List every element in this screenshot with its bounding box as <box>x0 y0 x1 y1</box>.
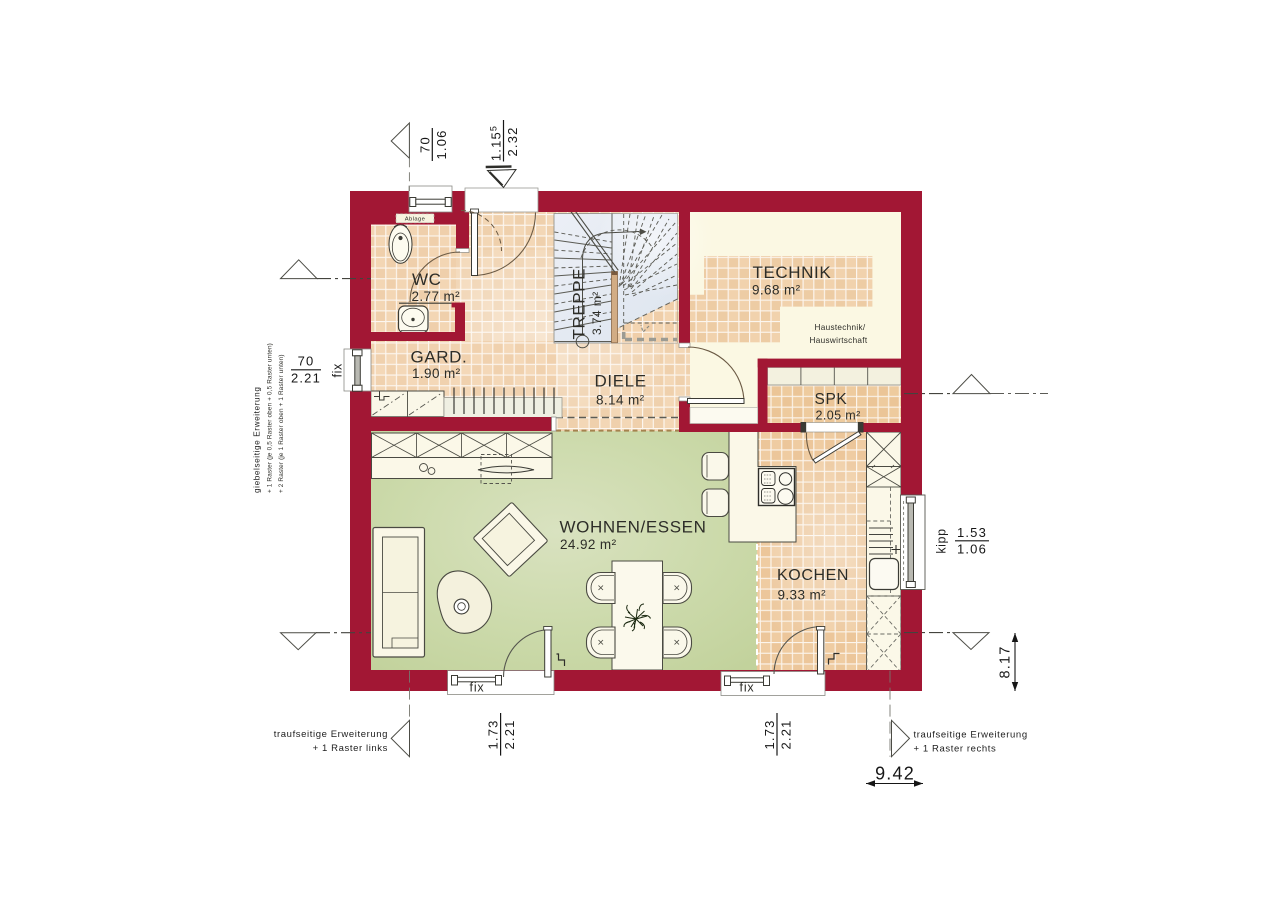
svg-text:giebelseitige Erweiterung: giebelseitige Erweiterung <box>253 387 262 493</box>
svg-text:+ 1 Raster (je 0,5 Raster oben: + 1 Raster (je 0,5 Raster oben + 0,5 Ras… <box>267 343 274 493</box>
svg-text:TREPPE: TREPPE <box>570 268 589 340</box>
svg-text:kipp: kipp <box>935 528 949 553</box>
svg-text:Hauswirtschaft: Hauswirtschaft <box>810 336 868 345</box>
svg-text:9.68 m²: 9.68 m² <box>752 283 801 298</box>
svg-text:2.05 m²: 2.05 m² <box>816 409 861 423</box>
svg-text:9.33 m²: 9.33 m² <box>778 588 827 603</box>
svg-text:2.77 m²: 2.77 m² <box>412 289 461 304</box>
svg-text:1.73: 1.73 <box>486 719 501 749</box>
svg-text:+ 1 Raster links: + 1 Raster links <box>313 743 388 754</box>
svg-text:fix: fix <box>470 681 485 695</box>
svg-text:traufseitige Erweiterung: traufseitige Erweiterung <box>274 729 388 740</box>
svg-text:+ 2 Raster (je 1 Raster oben +: + 2 Raster (je 1 Raster oben + 1 Raster … <box>278 354 285 493</box>
svg-text:GARD.: GARD. <box>411 348 468 367</box>
svg-text:2.21: 2.21 <box>502 719 517 749</box>
svg-text:KOCHEN: KOCHEN <box>777 567 849 584</box>
svg-text:Ablage: Ablage <box>405 217 425 223</box>
svg-text:WOHNEN/ESSEN: WOHNEN/ESSEN <box>560 518 707 537</box>
svg-text:24.92 m²: 24.92 m² <box>560 537 617 552</box>
svg-text:+ 1 Raster rechts: + 1 Raster rechts <box>914 744 997 755</box>
svg-text:8.14 m²: 8.14 m² <box>596 393 645 408</box>
svg-text:70: 70 <box>298 354 315 369</box>
svg-text:traufseitige Erweiterung: traufseitige Erweiterung <box>914 730 1028 741</box>
svg-text:2.32: 2.32 <box>505 126 520 156</box>
svg-text:1.53: 1.53 <box>957 525 987 540</box>
svg-text:3.74 m²: 3.74 m² <box>590 292 604 335</box>
svg-text:TECHNIK: TECHNIK <box>753 263 832 282</box>
svg-text:SPK: SPK <box>815 391 848 408</box>
svg-text:WC: WC <box>412 270 442 289</box>
svg-text:1.90 m²: 1.90 m² <box>412 366 461 381</box>
svg-text:70: 70 <box>417 136 432 153</box>
svg-text:1.06: 1.06 <box>957 542 987 557</box>
svg-text:8.17: 8.17 <box>998 645 1014 678</box>
svg-text:fix: fix <box>331 363 345 377</box>
svg-text:1.06: 1.06 <box>434 129 449 159</box>
svg-text:1.73: 1.73 <box>762 719 777 749</box>
svg-text:2.21: 2.21 <box>779 719 794 749</box>
svg-text:2.21: 2.21 <box>291 371 321 386</box>
svg-text:9.42: 9.42 <box>875 764 915 784</box>
svg-text:DIELE: DIELE <box>595 372 647 391</box>
svg-text:Haustechnik/: Haustechnik/ <box>815 323 866 332</box>
svg-text:fix: fix <box>740 681 755 695</box>
